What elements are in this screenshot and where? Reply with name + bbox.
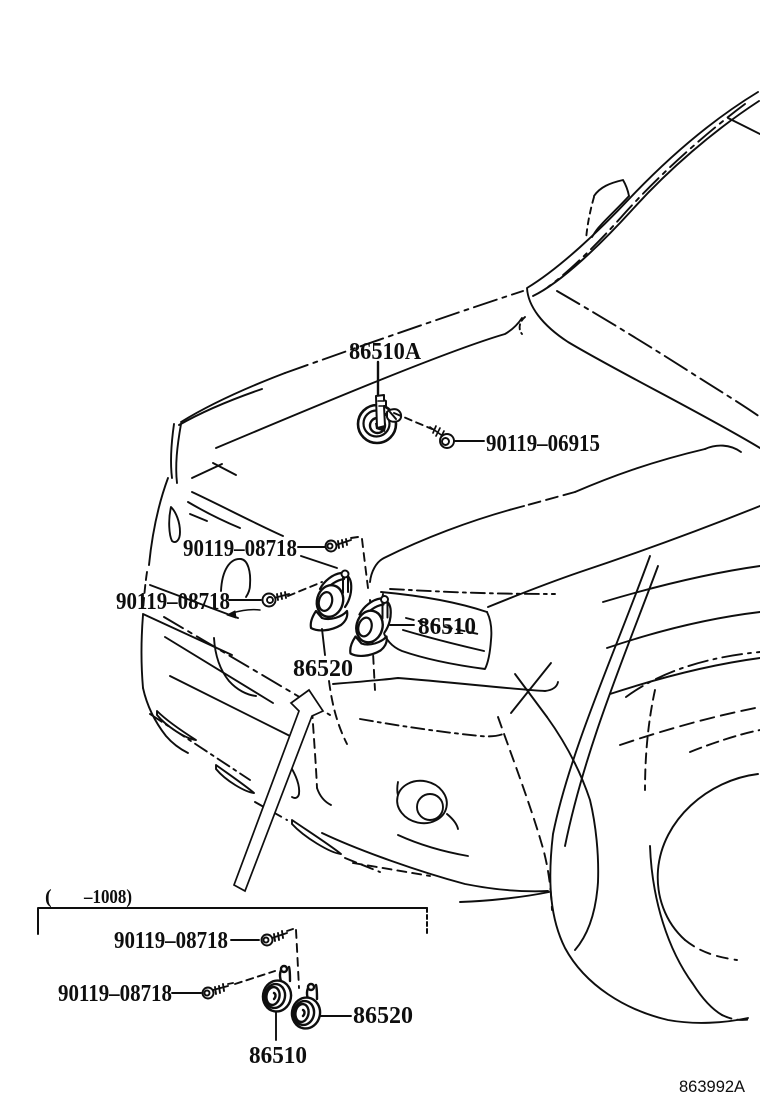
- svg-text:90119–06915: 90119–06915: [486, 431, 600, 457]
- svg-text:90119–08718: 90119–08718: [114, 928, 228, 954]
- svg-text:90119–08718: 90119–08718: [183, 536, 297, 562]
- svg-text:90119–08718: 90119–08718: [116, 589, 230, 615]
- svg-text:863992A: 863992A: [679, 1078, 745, 1096]
- svg-text:86510: 86510: [249, 1043, 307, 1069]
- svg-text:86510: 86510: [418, 614, 476, 640]
- svg-text:(: (: [45, 886, 52, 908]
- svg-text:86520: 86520: [293, 656, 353, 682]
- svg-text:90119–08718: 90119–08718: [58, 981, 172, 1007]
- svg-text:86520: 86520: [353, 1003, 413, 1029]
- svg-text:–1008): –1008): [83, 886, 132, 908]
- svg-text:86510A: 86510A: [349, 339, 422, 365]
